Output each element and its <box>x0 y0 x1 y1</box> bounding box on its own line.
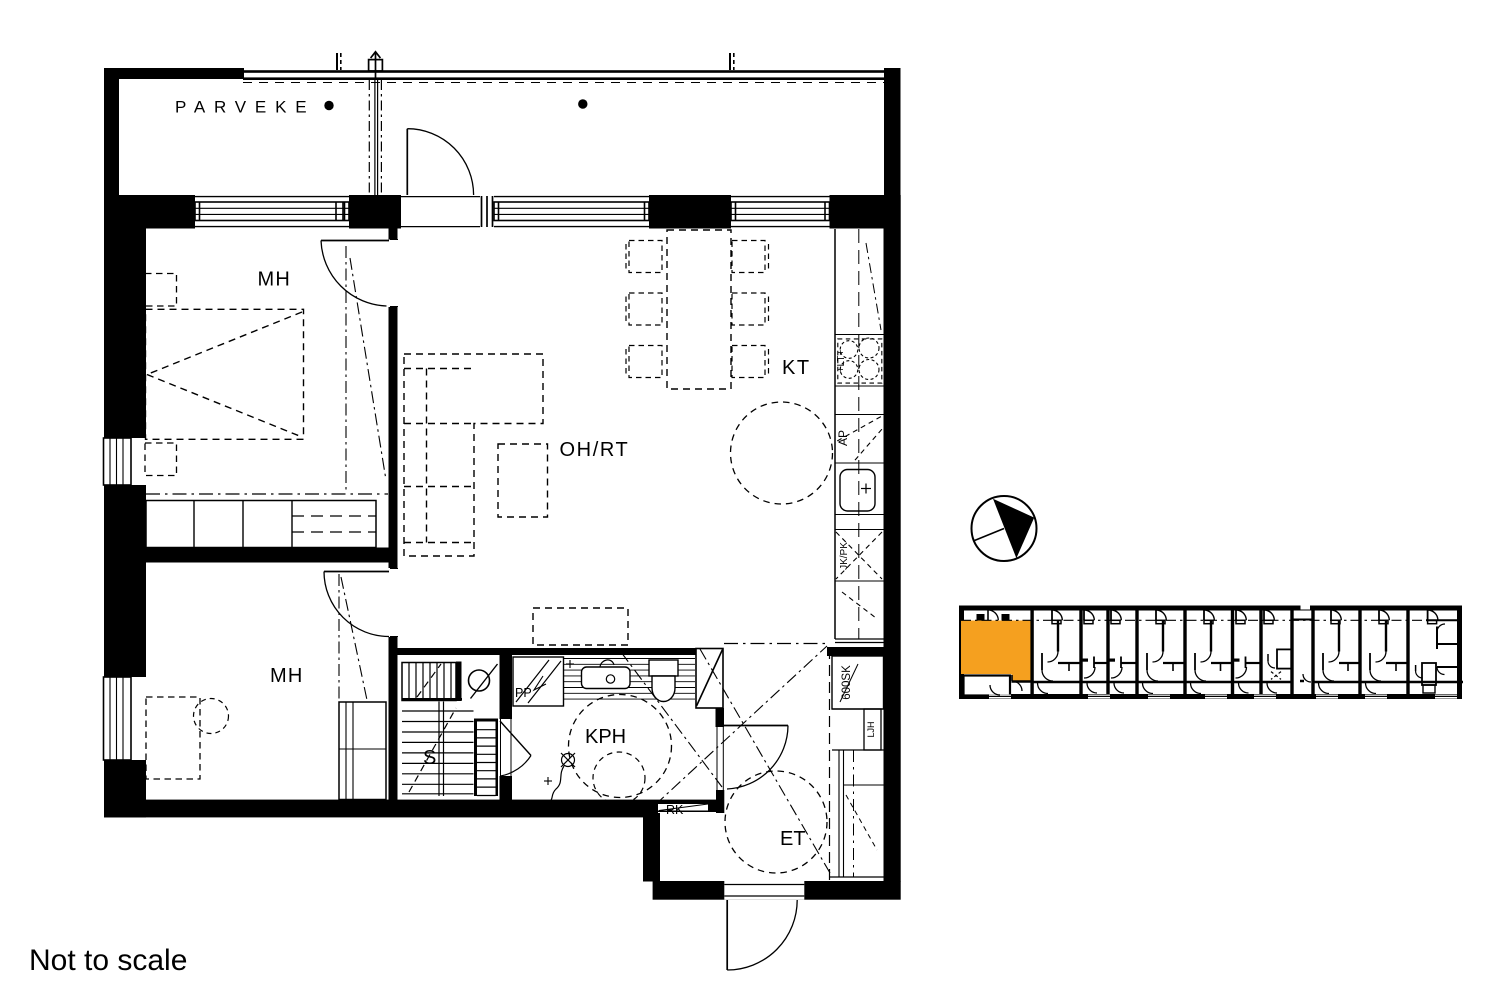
svg-text:Not to scale: Not to scale <box>29 944 187 977</box>
svg-text:PARVEKE: PARVEKE <box>175 98 315 117</box>
svg-text:MH: MH <box>270 665 304 687</box>
svg-text:S: S <box>423 747 436 769</box>
svg-text:OH/RT: OH/RT <box>560 439 630 461</box>
svg-text:+LT+: +LT+ <box>836 350 847 373</box>
svg-text:AP: AP <box>836 430 850 446</box>
svg-text:600SK: 600SK <box>841 665 853 700</box>
svg-text:RK: RK <box>666 803 684 817</box>
svg-text:KT: KT <box>782 357 811 379</box>
svg-text:JK/PK: JK/PK <box>839 542 850 570</box>
svg-text:ET: ET <box>780 828 806 850</box>
svg-text:LJH: LJH <box>866 721 876 737</box>
svg-text:KPH: KPH <box>585 726 626 748</box>
svg-text:MH: MH <box>258 269 292 291</box>
svg-text:PP: PP <box>515 686 532 700</box>
